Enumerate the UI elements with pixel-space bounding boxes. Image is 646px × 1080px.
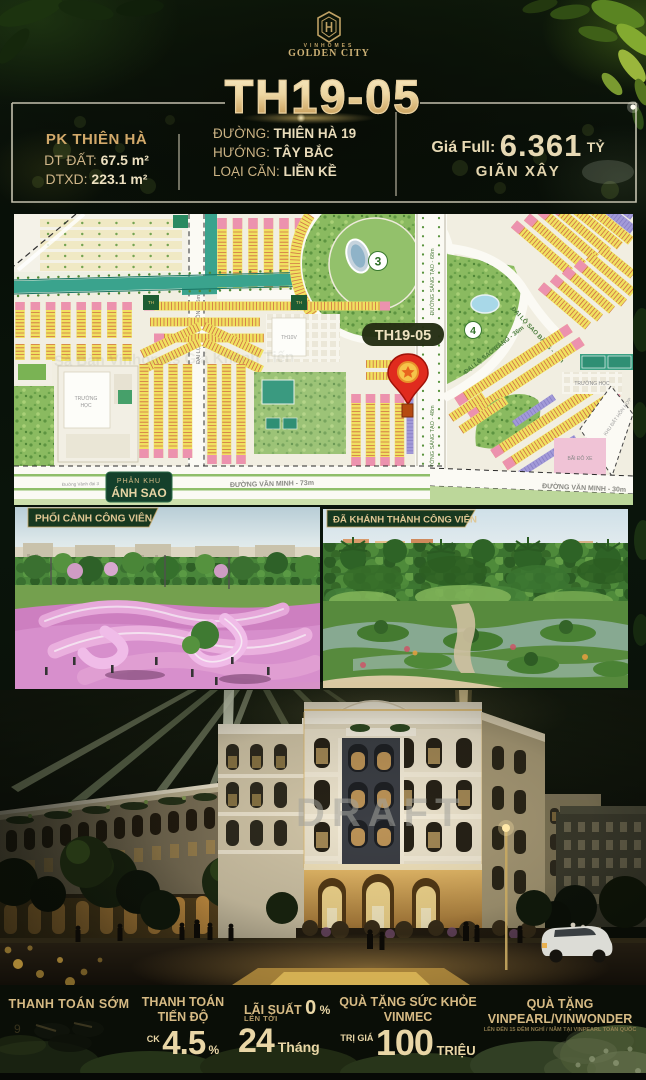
svg-text:TRƯỜNG HỌC: TRƯỜNG HỌC bbox=[574, 380, 610, 387]
svg-text:4: 4 bbox=[470, 325, 476, 337]
svg-text:BÃI ĐỖ XE: BÃI ĐỖ XE bbox=[567, 455, 593, 462]
svg-text:PHỐI CẢNH CÔNG VIÊN: PHỐI CẢNH CÔNG VIÊN bbox=[35, 511, 152, 525]
svg-text:3: 3 bbox=[375, 255, 382, 269]
svg-text:TH19-05: TH19-05 bbox=[375, 328, 431, 344]
svg-text:TH: TH bbox=[148, 300, 154, 305]
svg-text:ÁNH SAO: ÁNH SAO bbox=[111, 485, 166, 500]
svg-text:ĐƯỜNG SÁNG TẠO - 68m: ĐƯỜNG SÁNG TẠO - 68m bbox=[429, 248, 436, 315]
svg-text:PHÂN KHU: PHÂN KHU bbox=[117, 476, 161, 485]
svg-text:HỌC: HỌC bbox=[80, 403, 92, 409]
svg-text:ĐƯỜNG SÁNG TẠO - 48m: ĐƯỜNG SÁNG TẠO - 48m bbox=[429, 405, 436, 472]
svg-text:TH10V: TH10V bbox=[281, 335, 297, 341]
svg-text:TH: TH bbox=[296, 300, 302, 305]
svg-text:Đường Vành đai 3: Đường Vành đai 3 bbox=[62, 481, 100, 487]
svg-text:DRAFT: DRAFT bbox=[296, 791, 467, 835]
svg-text:TRƯỜNG: TRƯỜNG bbox=[75, 395, 98, 402]
svg-text:ĐÃ KHÁNH THÀNH CÔNG VIÊN: ĐÃ KHÁNH THÀNH CÔNG VIÊN bbox=[333, 514, 477, 526]
svg-text:9: 9 bbox=[14, 1022, 21, 1036]
